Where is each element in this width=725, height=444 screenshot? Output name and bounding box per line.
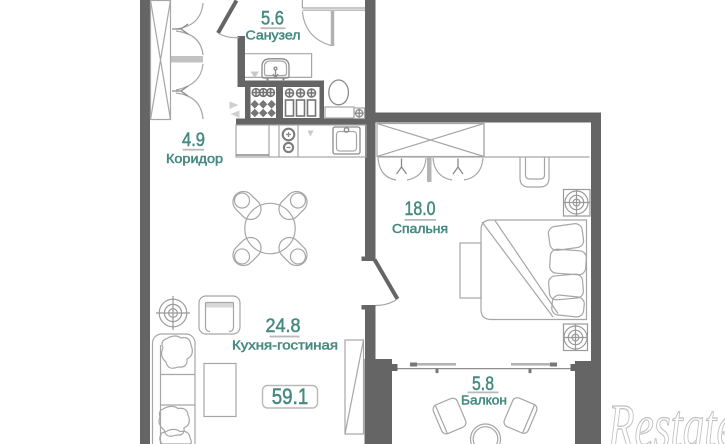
svg-text:Балкон: Балкон bbox=[461, 393, 507, 408]
svg-text:Санузел: Санузел bbox=[246, 28, 301, 43]
svg-text:Кухня-гостиная: Кухня-гостиная bbox=[232, 338, 338, 353]
svg-text:59.1: 59.1 bbox=[272, 384, 309, 409]
svg-text:4.9: 4.9 bbox=[182, 130, 205, 151]
svg-text:Коридор: Коридор bbox=[166, 151, 223, 166]
svg-text:Спальня: Спальня bbox=[392, 221, 448, 236]
svg-text:24.8: 24.8 bbox=[266, 316, 301, 337]
svg-text:18.0: 18.0 bbox=[405, 199, 436, 220]
svg-text:5.6: 5.6 bbox=[261, 9, 284, 30]
